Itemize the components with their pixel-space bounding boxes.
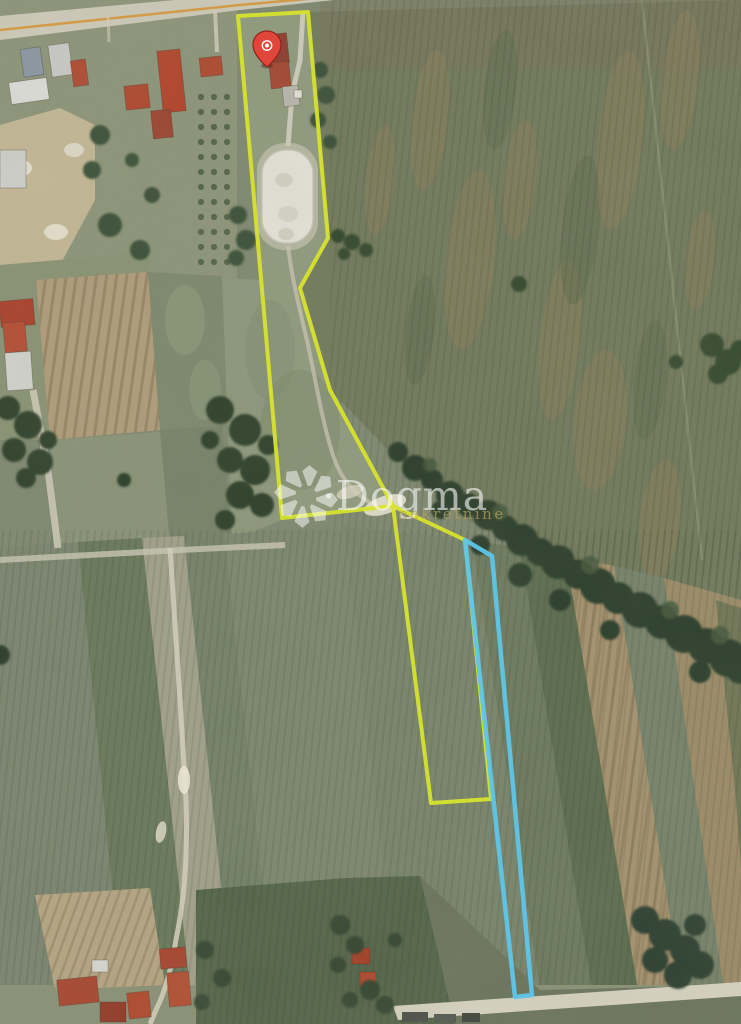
aerial-photo-canvas: ·Dogma nekretnine [0,0,741,1024]
watermark-subtitle-text: nekretnine [398,505,506,523]
aerial-photo: ·Dogma nekretnine [0,0,741,1024]
